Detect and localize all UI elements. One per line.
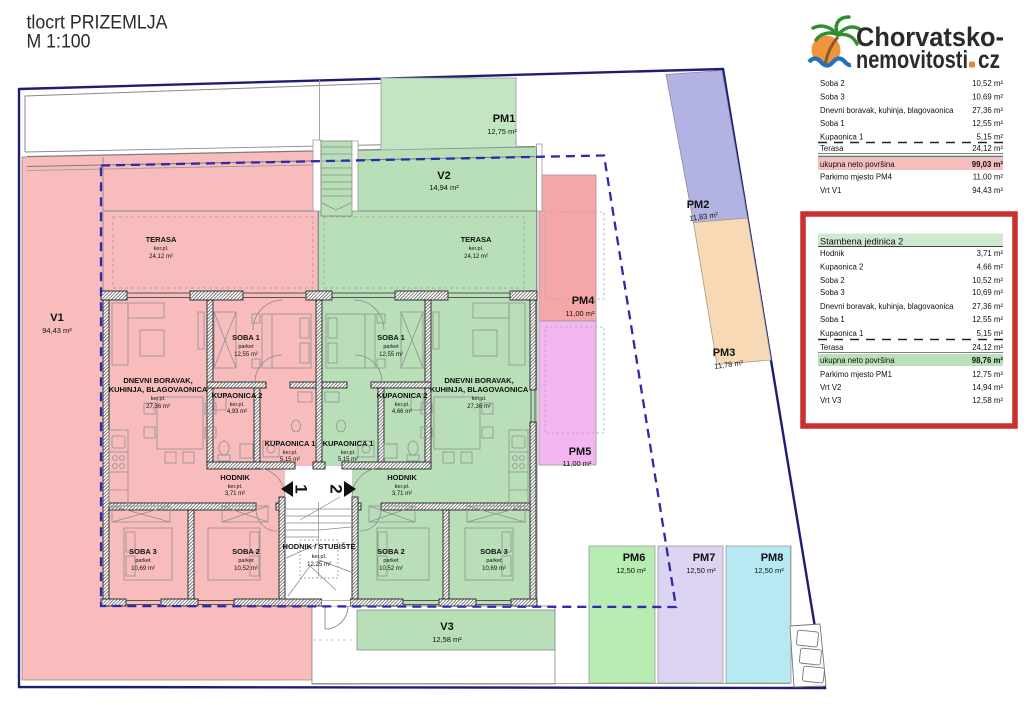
svg-text:12,25 m²: 12,25 m² — [307, 562, 331, 568]
svg-text:14,94 m²: 14,94 m² — [429, 183, 459, 192]
svg-text:Dnevni boravak, kuhinja, blago: Dnevni boravak, kuhinja, blagovaonica — [820, 106, 954, 115]
svg-text:PM8: PM8 — [761, 552, 784, 564]
svg-text:parket: parket — [383, 558, 399, 564]
svg-text:24,12 m²: 24,12 m² — [972, 343, 1003, 352]
svg-text:12,50 m²: 12,50 m² — [686, 566, 716, 575]
svg-text:14,94 m²: 14,94 m² — [972, 383, 1003, 392]
svg-text:Parkimo mjesto PM4: Parkimo mjesto PM4 — [820, 173, 893, 182]
svg-text:99,03 m²: 99,03 m² — [972, 160, 1004, 169]
svg-text:10,52 m²: 10,52 m² — [379, 566, 403, 572]
svg-text:94,43 m²: 94,43 m² — [42, 326, 72, 335]
svg-text:ker.pl.: ker.pl. — [312, 554, 327, 560]
svg-text:PM2: PM2 — [687, 199, 710, 211]
svg-text:11,00 m²: 11,00 m² — [562, 459, 592, 468]
svg-text:parket: parket — [135, 558, 151, 564]
svg-text:2: 2 — [327, 484, 346, 493]
svg-text:DNEVNI BORAVAK,: DNEVNI BORAVAK, — [123, 376, 192, 385]
svg-text:parket: parket — [486, 558, 502, 564]
svg-text:4,66 m²: 4,66 m² — [392, 409, 412, 415]
svg-text:KUHINJA, BLAGOVAONICA: KUHINJA, BLAGOVAONICA — [430, 385, 529, 394]
svg-text:27,36 m²: 27,36 m² — [972, 302, 1003, 311]
svg-text:Soba 3: Soba 3 — [820, 288, 845, 297]
svg-text:TERASA: TERASA — [146, 235, 177, 244]
svg-text:V3: V3 — [440, 621, 453, 633]
svg-text:Soba 1: Soba 1 — [820, 119, 845, 128]
svg-text:PM1: PM1 — [493, 113, 516, 125]
svg-text:10,52 m²: 10,52 m² — [972, 276, 1003, 285]
svg-text:1: 1 — [292, 484, 311, 493]
svg-text:Kupaonica 1: Kupaonica 1 — [820, 133, 863, 142]
svg-text:10,69 m²: 10,69 m² — [972, 288, 1003, 297]
svg-text:12,55 m²: 12,55 m² — [379, 352, 403, 358]
svg-text:4,66 m²: 4,66 m² — [977, 263, 1004, 272]
svg-text:Soba 2: Soba 2 — [820, 276, 845, 285]
svg-text:PM3: PM3 — [713, 347, 736, 359]
svg-text:24,12 m²: 24,12 m² — [464, 254, 488, 260]
svg-text:Soba 3: Soba 3 — [820, 93, 845, 102]
svg-text:Parkimo mjesto PM1: Parkimo mjesto PM1 — [820, 370, 892, 379]
svg-text:12,55 m²: 12,55 m² — [972, 119, 1003, 128]
svg-text:Dnevni boravak, kuhinja, blago: Dnevni boravak, kuhinja, blagovaonica — [820, 302, 954, 311]
svg-text:SOBA 1: SOBA 1 — [232, 333, 260, 342]
svg-text:10,52 m²: 10,52 m² — [972, 79, 1003, 88]
svg-text:12,75 m²: 12,75 m² — [972, 370, 1003, 379]
svg-text:12,50 m²: 12,50 m² — [616, 566, 646, 575]
svg-text:24,12 m²: 24,12 m² — [972, 144, 1003, 153]
svg-text:10,69 m²: 10,69 m² — [482, 566, 506, 572]
svg-text:3,71 m²: 3,71 m² — [225, 491, 245, 497]
svg-text:ukupna neto površina: ukupna neto površina — [820, 356, 895, 365]
svg-text:KUPAONICA 2: KUPAONICA 2 — [212, 391, 263, 400]
svg-text:PM5: PM5 — [569, 446, 592, 458]
svg-text:Hodnik: Hodnik — [820, 249, 844, 258]
svg-text:parket: parket — [238, 344, 254, 350]
svg-text:ker.pl.: ker.pl. — [472, 396, 487, 402]
svg-text:parket: parket — [383, 344, 399, 350]
svg-text:12,50 m²: 12,50 m² — [754, 566, 784, 575]
svg-text:ker.pl.: ker.pl. — [341, 450, 356, 456]
svg-text:3,71 m²: 3,71 m² — [977, 249, 1004, 258]
svg-text:ukupna neto površina: ukupna neto površina — [820, 160, 895, 169]
svg-text:ker.pl.: ker.pl. — [469, 246, 484, 252]
svg-text:5,15 m²: 5,15 m² — [977, 329, 1004, 338]
svg-text:12,75 m²: 12,75 m² — [487, 127, 517, 136]
svg-text:ker.pl.: ker.pl. — [230, 402, 245, 408]
svg-text:PM6: PM6 — [623, 552, 646, 564]
svg-text:Soba 1: Soba 1 — [820, 315, 845, 324]
svg-text:3,71 m²: 3,71 m² — [392, 491, 412, 497]
svg-text:12,55 m²: 12,55 m² — [234, 352, 258, 358]
svg-text:Terasa: Terasa — [820, 144, 844, 153]
svg-text:Soba 2: Soba 2 — [820, 79, 845, 88]
svg-text:4,93 m²: 4,93 m² — [227, 409, 247, 415]
svg-text:nemovitosti: nemovitosti — [856, 46, 968, 74]
svg-text:10,69 m²: 10,69 m² — [131, 566, 155, 572]
svg-text:SOBA 2: SOBA 2 — [232, 547, 260, 556]
svg-text:94,43 m²: 94,43 m² — [972, 186, 1003, 195]
svg-text:V1: V1 — [50, 312, 63, 324]
svg-text:98,76 m²: 98,76 m² — [972, 356, 1004, 365]
svg-text:27,36 m²: 27,36 m² — [972, 106, 1003, 115]
svg-text:Vrt V3: Vrt V3 — [820, 396, 841, 405]
svg-text:Stambena jedinica 2: Stambena jedinica 2 — [820, 237, 903, 247]
svg-text:10,69 m²: 10,69 m² — [972, 93, 1003, 102]
svg-text:V2: V2 — [437, 170, 450, 182]
svg-text:KUPAONICA 1: KUPAONICA 1 — [265, 439, 316, 448]
svg-text:ker.pl.: ker.pl. — [395, 484, 410, 490]
svg-text:HODNIK: HODNIK — [387, 473, 417, 482]
svg-text:27,36 m²: 27,36 m² — [146, 404, 170, 410]
svg-text:11,00 m²: 11,00 m² — [565, 309, 595, 318]
svg-text:cz: cz — [978, 46, 1000, 74]
svg-text:Vrt V2: Vrt V2 — [820, 383, 841, 392]
svg-text:5,15 m²: 5,15 m² — [280, 457, 300, 463]
svg-text:24,12 m²: 24,12 m² — [149, 254, 173, 260]
svg-text:Vrt V1: Vrt V1 — [820, 186, 841, 195]
svg-text:12,58 m²: 12,58 m² — [432, 635, 462, 644]
svg-text:ker.pl.: ker.pl. — [228, 484, 243, 490]
svg-text:10,52 m²: 10,52 m² — [234, 566, 258, 572]
svg-text:tlocrt PRIZEMLJA: tlocrt PRIZEMLJA — [27, 13, 168, 34]
svg-text:KUHINJA, BLAGOVAONICA: KUHINJA, BLAGOVAONICA — [109, 385, 208, 394]
svg-text:Kupaonica 1: Kupaonica 1 — [820, 329, 863, 338]
svg-text:parket: parket — [238, 558, 254, 564]
svg-text:27,36 m²: 27,36 m² — [467, 404, 491, 410]
svg-text:SOBA 1: SOBA 1 — [377, 333, 405, 342]
svg-text:HODNIK / STUBIŠTE: HODNIK / STUBIŠTE — [283, 542, 356, 551]
svg-text:SOBA 3: SOBA 3 — [129, 547, 157, 556]
svg-text:12,55 m²: 12,55 m² — [972, 315, 1003, 324]
svg-text:DNEVNI BORAVAK,: DNEVNI BORAVAK, — [444, 376, 513, 385]
svg-text:Kupaonica 2: Kupaonica 2 — [820, 263, 863, 272]
svg-text:Terasa: Terasa — [820, 343, 844, 352]
svg-text:SOBA 3: SOBA 3 — [480, 547, 508, 556]
svg-text:5,15 m²: 5,15 m² — [977, 133, 1004, 142]
svg-text:11,00 m²: 11,00 m² — [973, 173, 1004, 182]
svg-text:ker.pl.: ker.pl. — [154, 246, 169, 252]
svg-text:M 1:100: M 1:100 — [27, 32, 91, 53]
svg-text:HODNIK: HODNIK — [220, 473, 250, 482]
svg-text:PM7: PM7 — [693, 552, 716, 564]
svg-text:TERASA: TERASA — [461, 235, 492, 244]
svg-text:ker.pl.: ker.pl. — [151, 396, 166, 402]
svg-text:KUPAONICA 2: KUPAONICA 2 — [377, 391, 428, 400]
svg-text:ker.pl.: ker.pl. — [283, 450, 298, 456]
svg-text:PM4: PM4 — [572, 295, 596, 307]
svg-text:ker.pl.: ker.pl. — [395, 402, 410, 408]
svg-text:5,15 m²: 5,15 m² — [338, 457, 358, 463]
svg-text:12,58 m²: 12,58 m² — [972, 396, 1003, 405]
svg-text:SOBA 2: SOBA 2 — [377, 547, 405, 556]
svg-text:KUPAONICA 1: KUPAONICA 1 — [323, 439, 374, 448]
